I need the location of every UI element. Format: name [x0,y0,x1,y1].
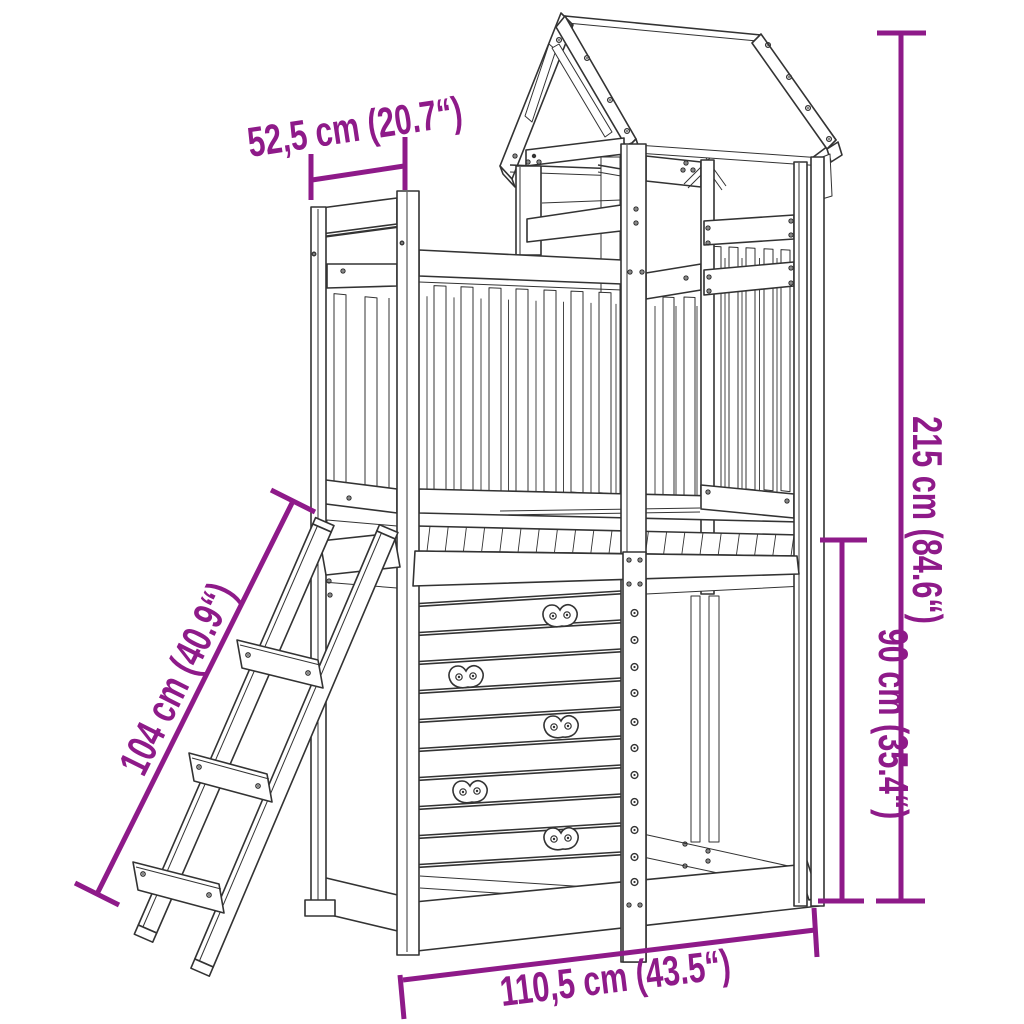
svg-text:90 cm (35.4“): 90 cm (35.4“) [870,629,917,820]
svg-text:215 cm (84.6“): 215 cm (84.6“) [904,416,951,624]
